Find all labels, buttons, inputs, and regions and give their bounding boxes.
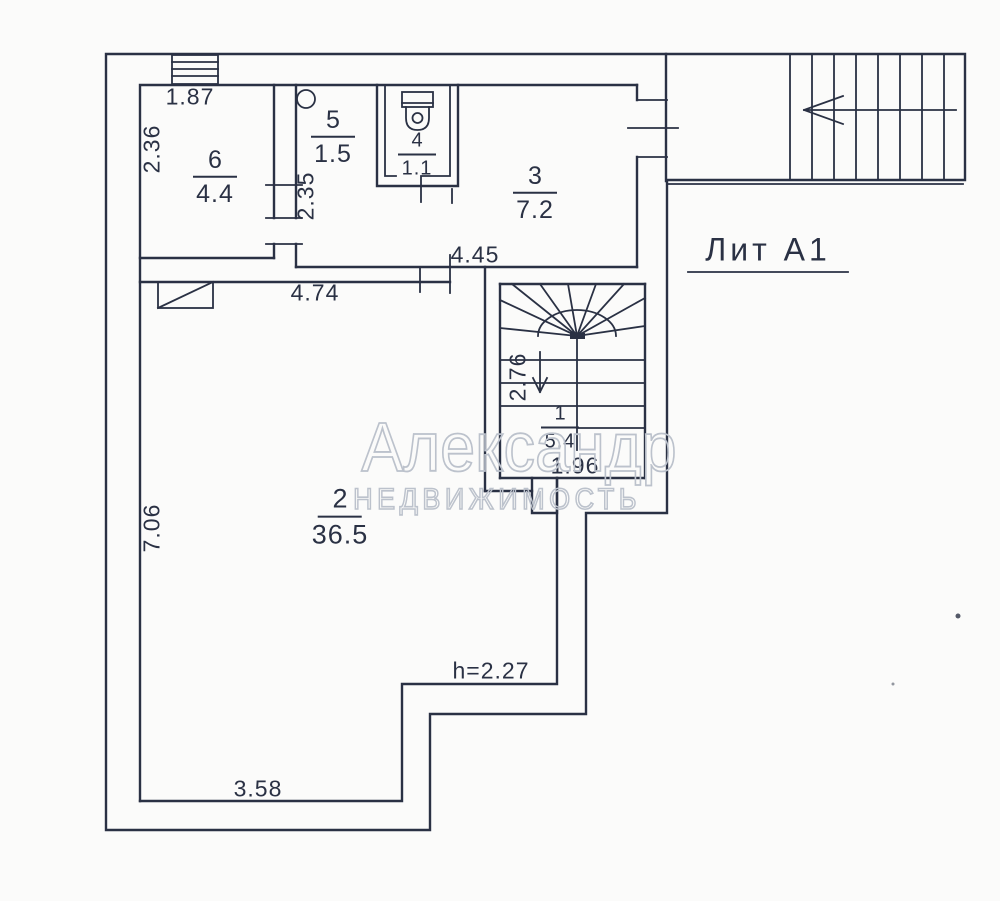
room-label-6: 6 4.4: [193, 147, 237, 208]
stair-door-stub: [532, 478, 557, 513]
room-number: 4: [398, 131, 436, 156]
dim-room2-depth: 7.06: [141, 504, 164, 553]
window-ticks-right: [628, 100, 678, 157]
toilet-icon: [402, 92, 433, 130]
room-label-4: 4 1.1: [398, 131, 436, 180]
room-label-1: 1 5.4: [541, 404, 579, 453]
dim-stair-depth: 2.76: [507, 353, 530, 402]
dim-room2-width: 4.74: [291, 282, 340, 305]
room-number: 5: [311, 107, 355, 138]
dim-strip-width: 4.45: [451, 244, 500, 267]
room-area: 1.1: [398, 156, 436, 180]
room-number: 2: [318, 485, 362, 518]
scan-dot: [892, 683, 895, 686]
room-area: 7.2: [513, 194, 557, 223]
dim-room2-bottom-width: 3.58: [234, 778, 283, 801]
entrance-steps: [172, 55, 218, 84]
room-label-2: 2 36.5: [312, 485, 369, 550]
room-number: 6: [193, 147, 237, 178]
circle-symbol: [297, 90, 315, 108]
room-number: 3: [513, 163, 557, 194]
liter-caption: Лит А1: [705, 232, 831, 269]
room-area: 5.4: [541, 429, 579, 453]
dim-room6-width: 1.87: [166, 86, 215, 109]
stair-down-arrow: [533, 352, 547, 392]
dim-stair-width: 1.96: [551, 455, 600, 478]
direction-arrow: [804, 96, 956, 124]
dim-room6-depth: 2.36: [141, 125, 164, 174]
room-label-3: 3 7.2: [513, 163, 557, 224]
room-label-5: 5 1.5: [311, 107, 355, 168]
floor-plan-page: 6 4.4 5 1.5 4 1.1 3 7.2 1 5.4 2 36.5 1.8…: [0, 0, 1000, 901]
stair-bottom-wall: [485, 478, 645, 491]
room-area: 36.5: [312, 518, 369, 549]
room-area: 4.4: [193, 178, 237, 207]
stair-left-wall: [485, 267, 500, 491]
scan-dot: [956, 614, 961, 619]
room-number: 1: [541, 404, 579, 429]
window-symbol: [158, 282, 213, 308]
dim-ceiling-height: h=2.27: [453, 660, 530, 683]
room3-door-ticks: [420, 255, 450, 293]
room-area: 1.5: [311, 138, 355, 167]
dim-room5-depth: 2.35: [295, 172, 318, 221]
external-staircase: [790, 55, 956, 180]
stair-treads: [790, 55, 944, 180]
